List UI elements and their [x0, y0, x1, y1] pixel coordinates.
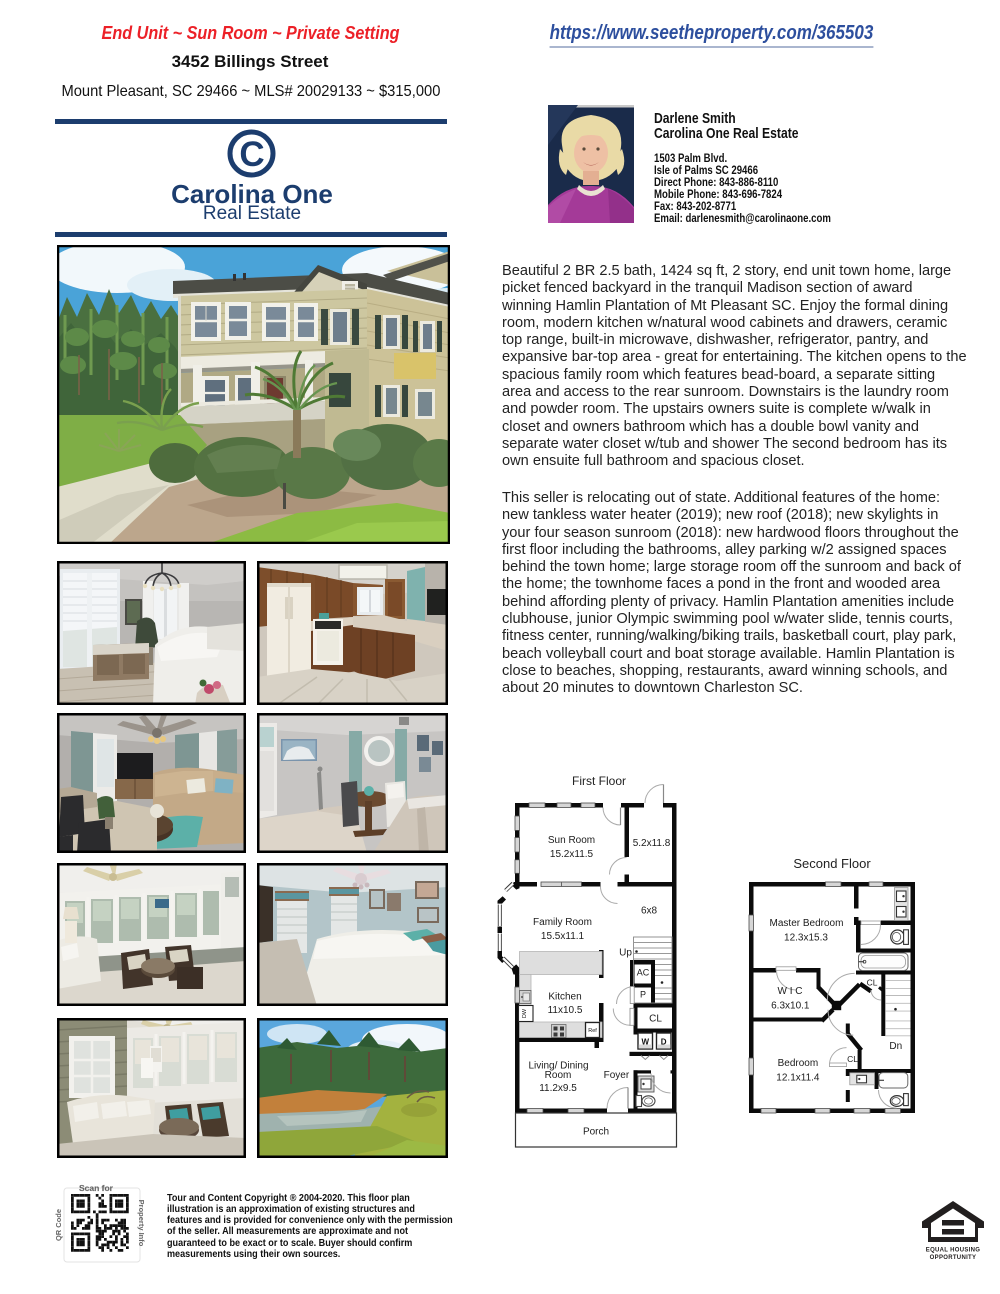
svg-text:OPPORTUNITY: OPPORTUNITY: [930, 1255, 977, 1261]
svg-text:EQUAL HOUSING: EQUAL HOUSING: [926, 1248, 980, 1254]
